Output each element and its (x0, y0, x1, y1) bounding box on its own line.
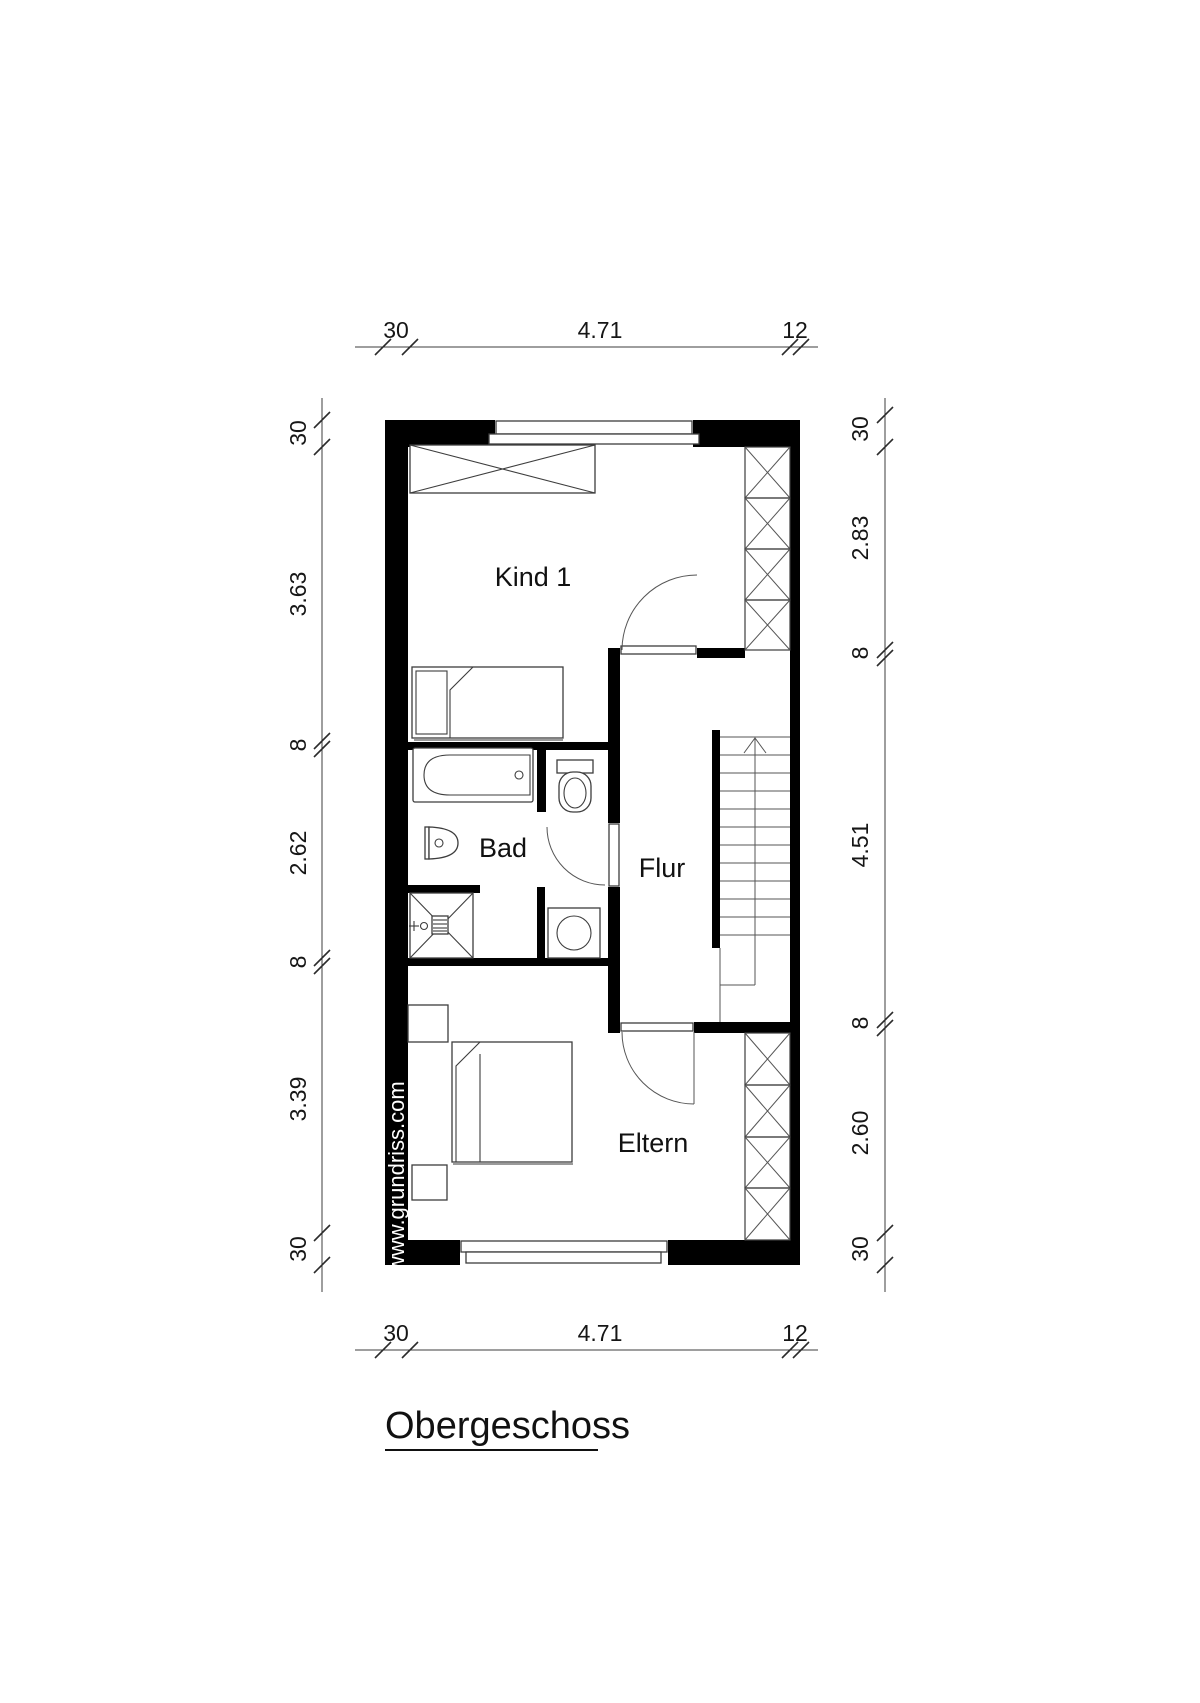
wall-tub-partition (537, 750, 546, 812)
window-icon (489, 421, 699, 444)
furniture-eltern (408, 1005, 573, 1200)
floor-plan-drawing: 30 4.71 12 30 4.71 12 30 3.63 8 2.62 8 3… (0, 0, 1200, 1703)
closet-hatch-icon (745, 447, 790, 650)
doors (547, 575, 697, 1104)
dimension-label: 3.63 (285, 572, 311, 617)
wall-stair-rail (712, 730, 720, 948)
furniture-kind1 (410, 445, 595, 740)
wall-washer-partition (537, 887, 545, 962)
bathtub-icon (413, 748, 533, 802)
wardrobe-icon (410, 445, 595, 493)
outer-wall-top (693, 420, 800, 447)
room-label-eltern: Eltern (618, 1128, 689, 1158)
dimension-label: 2.83 (847, 516, 873, 561)
dimension-chain-left: 30 3.63 8 2.62 8 3.39 30 (285, 398, 330, 1292)
dimension-label: 12 (782, 1320, 808, 1346)
dimension-label: 30 (383, 317, 409, 343)
dimension-label: 8 (847, 647, 873, 660)
dimension-chain-top: 30 4.71 12 (355, 317, 818, 355)
washing-machine-icon (548, 908, 600, 958)
dimension-label: 12 (782, 317, 808, 343)
dimension-chain-right: 30 2.83 8 4.51 8 2.60 30 (847, 398, 893, 1292)
door-swing-icon (621, 575, 697, 654)
dimension-label: 3.39 (285, 1077, 311, 1122)
wall-flur-left (608, 887, 620, 1033)
wall-flur-top (697, 648, 745, 658)
nightstand-icon (412, 1165, 447, 1200)
dimension-label: 30 (847, 416, 873, 442)
floor-title: Obergeschoss (385, 1405, 630, 1450)
toilet-icon (557, 760, 593, 812)
window-icon (461, 1241, 667, 1263)
wall-flur-left (608, 648, 620, 823)
dimension-label: 2.62 (285, 831, 311, 876)
dimension-label: 30 (847, 1236, 873, 1262)
room-label-bad: Bad (479, 833, 527, 863)
wall-bad-bottom (408, 958, 608, 966)
closet-hatches (745, 447, 790, 1240)
double-bed-icon (452, 1042, 573, 1164)
dimension-label: 30 (383, 1320, 409, 1346)
dimension-label: 30 (285, 1236, 311, 1262)
floor-plan-page: 30 4.71 12 30 4.71 12 30 3.63 8 2.62 8 3… (0, 0, 1200, 1703)
outer-wall-top (385, 420, 495, 447)
shower-icon (409, 893, 473, 958)
dimension-label: 8 (847, 1017, 873, 1030)
staircase-icon (720, 737, 790, 1022)
dimension-label: 4.51 (847, 823, 873, 868)
outer-wall-bottom (668, 1240, 800, 1265)
room-label-kind1: Kind 1 (495, 562, 572, 592)
wall-flur-bottom (694, 1022, 800, 1033)
single-bed-icon (412, 667, 563, 740)
room-label-flur: Flur (639, 853, 686, 883)
outer-wall-right (790, 420, 800, 1265)
dimension-label: 4.71 (578, 317, 623, 343)
wall-shower (408, 885, 480, 893)
dimension-label: 30 (285, 420, 311, 446)
dimension-chain-bottom: 30 4.71 12 (355, 1320, 818, 1358)
dimension-label: 2.60 (847, 1111, 873, 1156)
dimension-label: 8 (285, 739, 311, 752)
dimension-label: 8 (285, 956, 311, 969)
door-swing-icon (547, 824, 619, 886)
door-swing-icon (621, 1023, 694, 1104)
nightstand-icon (408, 1005, 448, 1042)
page-title: Obergeschoss (385, 1405, 630, 1447)
closet-hatch-icon (745, 1033, 790, 1240)
dimension-label: 4.71 (578, 1320, 623, 1346)
sink-icon (425, 827, 458, 859)
watermark-text: www.grundriss.com (384, 1081, 409, 1273)
